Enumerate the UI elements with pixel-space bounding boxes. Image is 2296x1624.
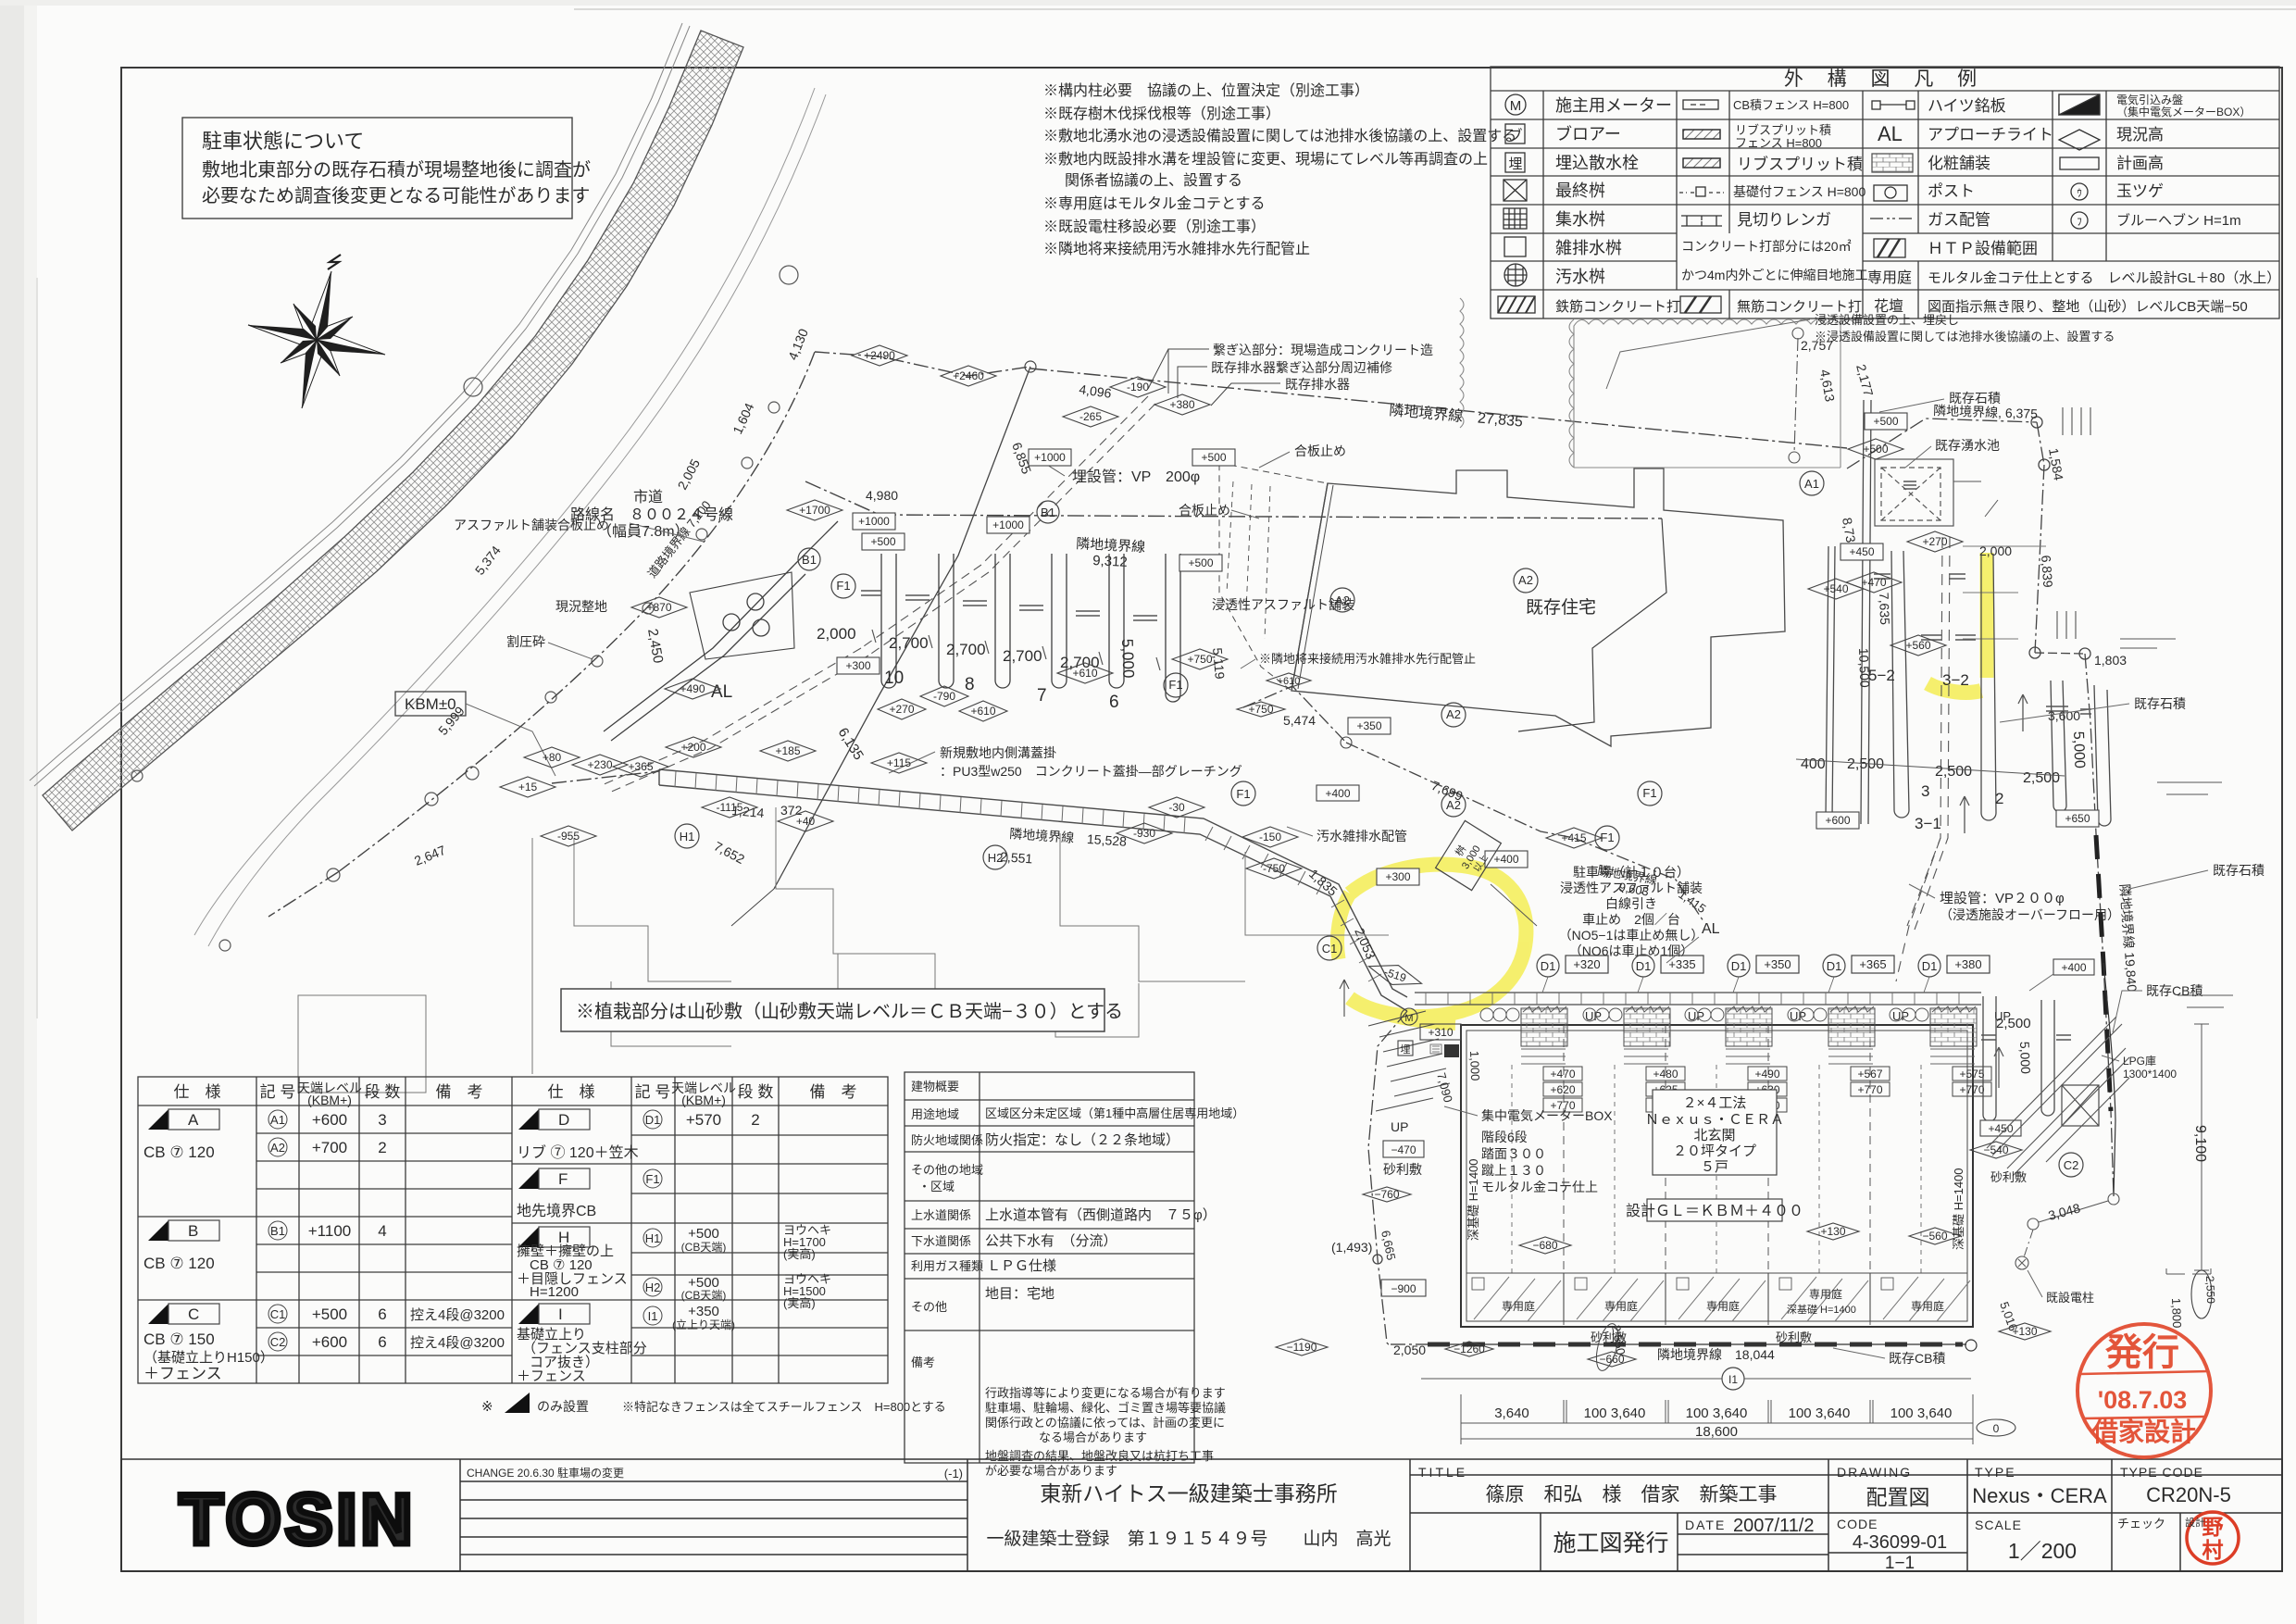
svg-text:施工図発行: 施工図発行 [1553,1530,1668,1556]
svg-text:+130: +130 [1820,1225,1845,1238]
svg-text:必要なため調査後変更となる可能性があります: 必要なため調査後変更となる可能性があります [202,185,590,206]
svg-text:+770: +770 [1857,1083,1882,1096]
svg-text:＋フェンス: ＋フェンス [143,1365,222,1382]
svg-text:+540: +540 [1823,582,1848,595]
svg-text:既存CB積: 既存CB積 [2146,983,2202,998]
svg-text:100 3,640: 100 3,640 [1789,1405,1851,1421]
svg-text:集中電気メーターBOX: 集中電気メーターBOX [1481,1108,1613,1123]
svg-text:3: 3 [378,1111,386,1129]
svg-text:砂利敷: 砂利敷 [1776,1330,1812,1344]
svg-text:AL: AL [1878,122,1903,145]
svg-text:+450: +450 [1849,545,1874,558]
svg-text:-930: -930 [1133,827,1155,840]
svg-text:CB ⑦ 120: CB ⑦ 120 [143,1255,215,1272]
svg-text:H=1200: H=1200 [530,1284,579,1300]
svg-text:2,000: 2,000 [817,625,856,643]
svg-text:6: 6 [378,1305,386,1323]
svg-text:※: ※ [481,1399,493,1415]
svg-text:DATE: DATE [1685,1518,1726,1532]
svg-text:A1: A1 [1804,477,1819,491]
svg-text:CODE: CODE [1837,1517,1878,1531]
svg-text:※専用庭はモルタル金コテとする: ※専用庭はモルタル金コテとする [1043,195,1266,212]
svg-text:地盤調査の結果、地盤改良又は杭打ち工事: 地盤調査の結果、地盤改良又は杭打ち工事 [985,1449,1214,1463]
svg-text:※特記なきフェンスは全てスチールフェンス H=800とする: ※特記なきフェンスは全てスチールフェンス H=800とする [622,1400,946,1414]
svg-text:+700: +700 [312,1139,347,1156]
svg-text:2007/11/2: 2007/11/2 [1733,1516,1815,1536]
svg-text:+40: +40 [796,815,816,828]
svg-text:+500: +500 [1873,415,1898,428]
svg-text:+400: +400 [1325,787,1350,800]
svg-text:砂利敷: 砂利敷 [1990,1170,2027,1184]
svg-text:+500: +500 [870,535,895,548]
svg-text:H2: H2 [645,1280,661,1294]
svg-text:：PU3型w250 コンクリート蓋掛―部グレーチング: ：PU3型w250 コンクリート蓋掛―部グレーチング [940,764,1242,779]
svg-text:+620: +620 [1550,1083,1575,1096]
svg-text:その他: その他 [911,1300,947,1314]
svg-text:+350: +350 [1356,719,1381,732]
svg-text:2,700: 2,700 [946,641,986,658]
svg-text:+570: +570 [686,1111,721,1129]
svg-text:記 号: 記 号 [260,1083,296,1101]
svg-text:2,757: 2,757 [1801,338,1833,353]
svg-text:H2: H2 [988,851,1004,865]
svg-text:浸透設備設置の上、埋戻し: 浸透設備設置の上、埋戻し [1815,313,1959,327]
svg-text:アスファルト舗装合板止め: アスファルト舗装合板止め [454,518,609,532]
svg-text:深基礎 H=1400: 深基礎 H=1400 [1466,1158,1480,1241]
svg-text:防火指定：なし（２２条地域）: 防火指定：なし（２２条地域） [985,1132,1179,1148]
svg-text:Ｎｅｘｕｓ・ＣＥＲＡ: Ｎｅｘｕｓ・ＣＥＲＡ [1645,1112,1784,1128]
svg-text:備考: 備考 [911,1355,935,1369]
svg-text:1,800: 1,800 [2169,1298,2184,1329]
svg-text:+320: +320 [1573,957,1600,971]
svg-text:合板止め: 合板止め [1294,443,1346,458]
svg-text:雑排水桝: 雑排水桝 [1555,239,1622,257]
svg-text:+610: +610 [970,705,995,718]
svg-text:+567: +567 [1857,1068,1882,1081]
svg-text:CB ⑦ 120: CB ⑦ 120 [143,1143,215,1161]
svg-text:敷地北東部分の既存石積が現場整地後に調査が: 敷地北東部分の既存石積が現場整地後に調査が [202,159,591,181]
svg-text:2,700: 2,700 [1003,647,1042,665]
svg-text:・区域: ・区域 [918,1180,955,1193]
svg-text:（NO5−1は車止め無し）: （NO5−1は車止め無し） [1559,928,1704,943]
svg-text:+230: +230 [587,758,612,771]
svg-text:−470: −470 [1391,1143,1416,1156]
svg-text:TOSIN: TOSIN [180,1480,417,1559]
svg-text:ＬＰＧ仕様: ＬＰＧ仕様 [987,1258,1056,1274]
svg-text:+610: +610 [1072,667,1097,680]
svg-text:+1700: +1700 [799,504,830,517]
svg-text:KBM±0: KBM±0 [405,695,456,713]
svg-text:TYPE CODE: TYPE CODE [2120,1465,2203,1480]
svg-text:汚水雑排水配管: 汚水雑排水配管 [1316,829,1407,843]
svg-text:ｳ: ｳ [2077,187,2082,199]
svg-text:D: D [558,1111,569,1129]
svg-text:現況高: 現況高 [2116,126,2164,144]
svg-text:行政指導等により変更になる場合が有ります: 行政指導等により変更になる場合が有ります [985,1386,1226,1400]
svg-text:踏面３００: 踏面３００ [1481,1146,1546,1161]
svg-text:+400: +400 [2061,961,2086,974]
svg-text:AL: AL [711,682,732,702]
svg-text:2,000: 2,000 [1979,543,2012,558]
svg-text:+300: +300 [1385,870,1410,883]
svg-text:ブロアー: ブロアー [1555,124,1621,144]
svg-text:+270: +270 [1922,535,1947,548]
svg-text:専用庭: 専用庭 [1911,1299,1944,1313]
svg-text:その他の地域: その他の地域 [911,1163,983,1177]
svg-text:※既存樹木伐採伐根等（別途工事）: ※既存樹木伐採伐根等（別途工事） [1043,106,1280,122]
svg-text:−1260: −1260 [1454,1343,1485,1355]
svg-text:深基礎 H=1400: 深基礎 H=1400 [1787,1304,1856,1316]
svg-text:既存住宅: 既存住宅 [1526,597,1596,618]
svg-text:設計: 設計 [2185,1516,2205,1529]
svg-text:+380: +380 [1169,398,1194,411]
svg-text:ＨＴＰ設備範囲: ＨＴＰ設備範囲 [1928,240,2038,257]
svg-text:かつ4m内外ごとに伸縮目地施工: かつ4m内外ごとに伸縮目地施工 [1681,268,1867,282]
svg-text:+500: +500 [1188,556,1213,569]
svg-text:既存湧水池: 既存湧水池 [1935,438,2000,453]
svg-text:地先境界CB: 地先境界CB [517,1202,596,1219]
svg-text:基礎付フェンス H=800: 基礎付フェンス H=800 [1733,184,1865,199]
svg-text:区域区分未定区域（第1種中高層住居専用地域）: 区域区分未定区域（第1種中高層住居専用地域） [985,1106,1244,1120]
svg-text:A2: A2 [1518,573,1533,587]
svg-text:100 3,640: 100 3,640 [1890,1405,1953,1421]
svg-text:地目：宅地: 地目：宅地 [985,1286,1054,1302]
svg-text:+470: +470 [1861,576,1886,589]
svg-text:ブルーヘブン H=1m: ブルーヘブン H=1m [2116,212,2241,229]
svg-text:最終桝: 最終桝 [1555,181,1605,200]
svg-text:2,551: 2,551 [1000,849,1033,866]
svg-text:-30: -30 [1168,801,1185,814]
svg-text:+560: +560 [1905,639,1930,652]
svg-text:D1: D1 [1922,959,1938,973]
svg-text:F1: F1 [645,1172,659,1186]
svg-text:M: M [1404,1013,1413,1024]
svg-text:+350: +350 [688,1304,719,1319]
svg-text:(CB天端): (CB天端) [681,1241,727,1254]
svg-text:鉄筋コンクリート打: 鉄筋コンクリート打 [1555,299,1680,315]
svg-text:1／200: 1／200 [2008,1539,2077,1563]
svg-text:B1: B1 [1041,506,1055,519]
svg-text:専用庭: 専用庭 [1706,1299,1740,1313]
svg-text:既設電柱: 既設電柱 [2046,1291,2094,1305]
svg-text:汚水桝: 汚水桝 [1555,268,1605,286]
svg-text:関係者協議の上、設置する: 関係者協議の上、設置する [1065,172,1242,189]
svg-text:C1: C1 [1322,942,1338,956]
svg-text:+500: +500 [1201,451,1226,464]
svg-text:埋込散水栓: 埋込散水栓 [1555,154,1639,172]
svg-text:B1: B1 [270,1224,285,1238]
svg-text:+1100: +1100 [308,1222,351,1240]
svg-text:M: M [1510,98,1522,114]
svg-text:（浸透施設オーバーフロー用）: （浸透施設オーバーフロー用） [1940,907,2120,922]
svg-text:C2: C2 [2064,1158,2079,1172]
svg-text:+300: +300 [845,659,870,672]
svg-text:2,500: 2,500 [1996,1016,2031,1031]
svg-text:F1: F1 [1168,678,1182,692]
svg-text:ﾌ: ﾌ [2077,217,2082,228]
svg-text:'08.7.03: '08.7.03 [2098,1386,2188,1414]
svg-text:利用ガス種類: 利用ガス種類 [911,1259,983,1273]
svg-text:設計ＧＬ＝ＫＢＭ＋４００: 設計ＧＬ＝ＫＢＭ＋４００ [1626,1203,1803,1219]
svg-text:※敷地北湧水池の浸透設備設置に関しては池排水後協議の上、設置: ※敷地北湧水池の浸透設備設置に関しては池排水後協議の上、設置する [1043,127,1516,144]
svg-text:C: C [188,1305,199,1323]
svg-text:+500: +500 [688,1226,719,1242]
svg-text:+15: +15 [518,781,538,793]
svg-text:※構内柱必要 協議の上、位置決定（別途工事）: ※構内柱必要 協議の上、位置決定（別途工事） [1043,82,1369,99]
svg-text:+575: +575 [1959,1068,1984,1081]
svg-text:専用庭: 専用庭 [1502,1299,1535,1313]
svg-text:D1: D1 [1731,959,1747,973]
svg-text:4: 4 [378,1222,386,1240]
svg-text:駐車状態について: 駐車状態について [202,130,364,153]
svg-text:CB ⑦ 150: CB ⑦ 150 [143,1330,215,1348]
svg-text:+380: +380 [1954,957,1981,971]
svg-text:アプローチライト: アプローチライト [1928,126,2053,144]
svg-text:市道: 市道 [633,489,663,506]
svg-text:コンクリート打部分には20㎡: コンクリート打部分には20㎡ [1681,239,1852,254]
svg-text:A2: A2 [270,1141,285,1155]
svg-text:SCALE: SCALE [1975,1518,2022,1532]
svg-text:+350: +350 [1764,957,1791,971]
svg-text:100 3,640: 100 3,640 [1584,1405,1646,1421]
svg-text:※植栽部分は山砂敷（山砂敷天端レベル＝ＣＢ天端−３０）とする: ※植栽部分は山砂敷（山砂敷天端レベル＝ＣＢ天端−３０）とする [576,1001,1123,1022]
svg-text:(-1): (-1) [944,1467,963,1480]
svg-text:繋ぎ込部分：現場造成コンクリート造: 繋ぎ込部分：現場造成コンクリート造 [1213,343,1433,357]
svg-text:H1: H1 [645,1231,661,1245]
svg-text:一級建築士登録 第１９１５４９号 山内 高光: 一級建築士登録 第１９１５４９号 山内 高光 [986,1529,1391,1549]
svg-text:I: I [558,1305,563,1323]
svg-text:+200: +200 [680,741,705,754]
svg-text:2,050: 2,050 [1393,1343,1426,1357]
svg-text:-190: -190 [1127,381,1149,394]
svg-text:AL: AL [1702,921,1720,937]
svg-text:1−1: 1−1 [1885,1554,1915,1573]
svg-text:＋フェンス: ＋フェンス [517,1368,586,1384]
svg-text:外 構 図 凡 例: 外 構 図 凡 例 [1784,69,1986,90]
svg-text:モルタル金コテ仕上: モルタル金コテ仕上 [1481,1180,1598,1194]
svg-text:F1: F1 [836,579,850,593]
svg-text:+770: +770 [1959,1083,1984,1096]
svg-text:砂利敷: 砂利敷 [1383,1162,1422,1177]
svg-text:F1: F1 [1600,831,1614,844]
svg-text:白線引き: 白線引き [1605,896,1657,911]
svg-text:※隣地将来接続用汚水雑排水先行配管止: ※隣地将来接続用汚水雑排水先行配管止 [1259,652,1476,666]
svg-text:-1115: -1115 [717,801,743,814]
svg-text:3−1: 3−1 [1915,815,1941,832]
svg-text:+415: +415 [1561,831,1586,844]
svg-text:H1: H1 [680,830,695,843]
svg-text:5,119: 5,119 [1210,647,1228,680]
svg-text:既存排水器: 既存排水器 [1285,377,1350,392]
svg-text:2,550: 2,550 [2203,1276,2217,1305]
svg-text:※敷地内既設排水溝を埋設管に変更、現場にてレベル等再調査の上: ※敷地内既設排水溝を埋設管に変更、現場にてレベル等再調査の上 [1043,150,1488,168]
svg-text:割圧砕: 割圧砕 [506,634,545,649]
svg-text:埋: 埋 [1508,156,1522,172]
svg-text:リブスプリット積: リブスプリット積 [1735,123,1831,137]
svg-text:+600: +600 [312,1333,347,1351]
svg-text:−1190: −1190 [1287,1341,1317,1354]
svg-text:のみ設置: のみ設置 [537,1399,589,1414]
svg-text:A2: A2 [1446,707,1461,721]
svg-text:駐車場（計１０台）: 駐車場（計１０台） [1573,865,1690,880]
svg-text:CHANGE 20.6.30 駐車場の変更: CHANGE 20.6.30 駐車場の変更 [467,1466,624,1480]
svg-text:5,000: 5,000 [2017,1042,2033,1075]
svg-text:+650: +650 [2065,812,2090,825]
svg-text:備 考: 備 考 [810,1083,857,1101]
svg-text:2: 2 [378,1139,386,1156]
svg-text:見切りレンガ: 見切りレンガ [1737,211,1831,229]
svg-text:+335: +335 [1668,957,1695,971]
svg-text:A1: A1 [270,1113,285,1127]
svg-text:2: 2 [1995,790,2003,807]
svg-text:ブ: ブ [1508,127,1522,144]
svg-text:1,803: 1,803 [2094,653,2127,668]
svg-text:100 3,640: 100 3,640 [1686,1405,1748,1421]
svg-text:(KBM+): (KBM+) [307,1093,352,1107]
svg-text:9,312: 9,312 [1092,553,1128,570]
svg-text:関係行政との協議に依っては、計画の変更に: 関係行政との協議に依っては、計画の変更に [985,1416,1225,1430]
svg-text:5,000: 5,000 [2070,731,2087,769]
svg-text:1300*1400: 1300*1400 [2123,1068,2177,1081]
svg-text:蹴上１３０: 蹴上１３０ [1481,1163,1546,1178]
svg-text:ガス配管: ガス配管 [1928,211,1990,229]
svg-text:既存石積: 既存石積 [2134,696,2186,711]
svg-text:6: 6 [378,1333,386,1351]
svg-text:-150: -150 [1259,831,1281,843]
svg-text:公共下水有 （分流）: 公共下水有 （分流） [985,1233,1117,1249]
svg-text:18,600: 18,600 [1695,1424,1738,1440]
svg-text:(実高): (実高) [783,1296,816,1310]
svg-text:+750: +750 [1187,653,1212,666]
svg-text:（集中電気メーターBOX）: （集中電気メーターBOX） [2116,105,2251,119]
svg-text:専用庭: 専用庭 [1867,269,1912,286]
svg-text:D1: D1 [1541,959,1556,973]
svg-text:+400: +400 [1493,853,1518,866]
svg-text:Nexus・CERA: Nexus・CERA [1972,1484,2107,1507]
svg-text:F1: F1 [1642,786,1656,800]
svg-text:電気引込み盤: 電気引込み盤 [2116,93,2183,106]
svg-text:B: B [188,1222,198,1240]
svg-text:仕 様: 仕 様 [548,1083,595,1101]
svg-text:+2460: +2460 [953,369,984,382]
svg-text:ハイツ銘板: ハイツ銘板 [1928,97,2006,115]
svg-text:3,600: 3,600 [2048,708,2080,723]
svg-text:フェンス H=800: フェンス H=800 [1735,136,1822,150]
svg-text:6,839: 6,839 [2039,555,2055,588]
svg-text:5,000: 5,000 [1118,638,1137,678]
svg-text:+270: +270 [889,703,914,716]
svg-text:D1: D1 [645,1113,661,1127]
svg-text:下水道関係: 下水道関係 [911,1234,971,1248]
svg-text:2,700: 2,700 [889,634,929,652]
svg-text:新規敷地内側溝蓋掛: 新規敷地内側溝蓋掛 [940,745,1056,760]
svg-text:+80: +80 [543,751,562,764]
svg-text:現況整地: 現況整地 [555,599,607,614]
svg-text:8: 8 [965,675,975,694]
svg-text:7: 7 [1037,686,1047,706]
svg-text:東新ハイトス一級建築士事務所: 東新ハイトス一級建築士事務所 [1040,1481,1338,1505]
svg-text:が必要な場合があります: が必要な場合があります [985,1464,1117,1478]
svg-text:チェック: チェック [2117,1517,2165,1530]
svg-text:建物概要: 建物概要 [911,1080,959,1093]
svg-text:+480: +480 [1653,1068,1678,1081]
svg-text:UP: UP [1391,1119,1408,1134]
svg-text:-265: -265 [1079,410,1102,423]
svg-text:合板止め: 合板止め [1179,503,1230,518]
svg-text:※既設電柱移設必要（別途工事）: ※既設電柱移設必要（別途工事） [1043,219,1266,235]
svg-text:埋設管：VP２００φ: 埋設管：VP２００φ [1940,891,2065,906]
svg-text:+185: +185 [775,744,800,757]
svg-text:+1000: +1000 [1034,451,1066,464]
svg-text:−760: −760 [1374,1188,1399,1201]
svg-text:浸透性アスファルト舗装: 浸透性アスファルト舗装 [1212,597,1354,612]
svg-text:駐車場、駐輪場、緑化、ゴミ置き場等要協議: 駐車場、駐輪場、緑化、ゴミ置き場等要協議 [985,1401,1226,1415]
svg-text:集水桝: 集水桝 [1555,210,1605,229]
svg-text:-790: -790 [933,690,955,703]
svg-text:+490: +490 [1754,1068,1779,1081]
svg-text:(KBM+): (KBM+) [681,1093,726,1107]
svg-text:+1000: +1000 [992,518,1024,531]
svg-text:+490: +490 [680,682,705,695]
svg-text:リブスプリット積: リブスプリット積 [1737,155,1863,173]
svg-text:−900: −900 [1391,1282,1416,1295]
svg-text:+365: +365 [628,760,653,773]
svg-text:図面指示無き限り、整地（山砂）レベルCB天端−50: 図面指示無き限り、整地（山砂）レベルCB天端−50 [1928,299,2248,315]
svg-text:階段6段: 階段6段 [1481,1130,1528,1144]
svg-text:上水道関係: 上水道関係 [911,1208,971,1222]
svg-text:A2: A2 [1335,593,1350,607]
svg-text:CR20N-5: CR20N-5 [2146,1483,2231,1506]
svg-text:既存CB積: 既存CB積 [1889,1351,1945,1366]
svg-text:埋設管：VP 200φ: 埋設管：VP 200φ [1072,468,1200,485]
svg-text:400: 400 [1801,756,1826,772]
svg-text:D1: D1 [1636,959,1652,973]
svg-text:埋: 埋 [1401,1043,1411,1056]
svg-text:−560: −560 [1922,1230,1947,1243]
svg-text:発行: 発行 [2105,1332,2179,1373]
svg-text:4-36099-01: 4-36099-01 [1853,1532,1947,1553]
svg-text:−680: −680 [1532,1239,1557,1252]
svg-text:6: 6 [1109,693,1119,712]
svg-text:I1: I1 [1728,1373,1738,1386]
svg-text:施主用メーター: 施主用メーター [1555,96,1672,115]
svg-text:隣地境界線 18,044: 隣地境界線 18,044 [1657,1347,1775,1362]
svg-text:配置図: 配置図 [1866,1485,1930,1509]
svg-text:※浸透設備設置に関しては池排水後協議の上、設置する: ※浸透設備設置に関しては池排水後協議の上、設置する [1815,330,2115,344]
svg-text:ポスト: ポスト [1928,182,1975,200]
svg-text:I1: I1 [648,1309,658,1323]
svg-text:上水道本管有（西側道路内 ７５φ）: 上水道本管有（西側道路内 ７５φ） [985,1207,1217,1223]
svg-text:-955: -955 [557,830,580,843]
svg-text:−540: −540 [1983,1143,2008,1156]
svg-text:TITLE: TITLE [1418,1465,1467,1480]
svg-text:リブ ⑦ 120＋笠木: リブ ⑦ 120＋笠木 [517,1143,639,1161]
svg-text:C2: C2 [270,1335,286,1349]
svg-text:記 号: 記 号 [635,1083,671,1101]
svg-text:専用庭: 専用庭 [1809,1287,1842,1301]
svg-text:+130: +130 [2012,1325,2037,1338]
svg-text:2: 2 [751,1111,759,1129]
svg-text:+500: +500 [312,1305,347,1323]
svg-text:+750: +750 [1248,703,1273,716]
svg-text:+600: +600 [1825,814,1850,827]
svg-text:4,980: 4,980 [866,488,898,503]
svg-text:既存石積: 既存石積 [2213,863,2265,878]
svg-text:車止め 2個／台: 車止め 2個／台 [1582,912,1680,927]
svg-text:3−2: 3−2 [1942,671,1969,689]
svg-text:7,635: 7,635 [1877,593,1892,626]
svg-text:浸透性アスファルト舗装: 浸透性アスファルト舗装 [1560,881,1703,895]
